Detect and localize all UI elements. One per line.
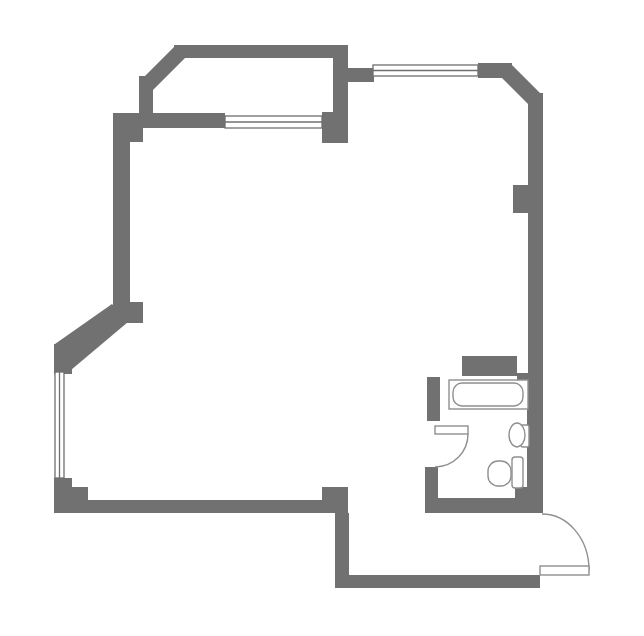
bottom-left-pier	[54, 478, 72, 513]
bottom-left-step	[72, 487, 88, 513]
bay-right-pier	[322, 112, 348, 143]
top-connector-wall	[348, 68, 374, 82]
bay-left-wall	[139, 76, 153, 118]
bathroom-top-wall	[462, 356, 517, 376]
right-wall-pier	[513, 185, 528, 213]
entry-door-leaf	[540, 566, 589, 575]
left-window-pier	[54, 344, 72, 374]
sink-bowl	[509, 423, 525, 447]
bay-inner-wall	[140, 113, 225, 128]
entry-door-swing-arc	[542, 514, 589, 570]
bathtub-basin	[453, 383, 523, 406]
bay-top-wall	[174, 45, 348, 58]
bottom-offset-corner	[322, 487, 348, 513]
bathroom-left-wall-upper	[427, 377, 440, 421]
right-wall-upper	[528, 93, 543, 215]
bathroom-corner-block	[515, 487, 543, 503]
bottom-wall-right	[335, 575, 540, 588]
left-wall	[113, 128, 130, 308]
floor-plan-canvas	[0, 0, 644, 636]
toilet-tank	[512, 457, 523, 488]
bathroom-door-leaf	[435, 426, 468, 434]
right-wall-mid	[528, 213, 543, 375]
bathroom-door-swing-arc	[435, 434, 468, 467]
floor-plan-page	[0, 0, 644, 636]
bottom-wall-left	[54, 500, 322, 513]
bottom-offset-wall	[335, 513, 349, 583]
toilet-bowl	[488, 461, 511, 486]
